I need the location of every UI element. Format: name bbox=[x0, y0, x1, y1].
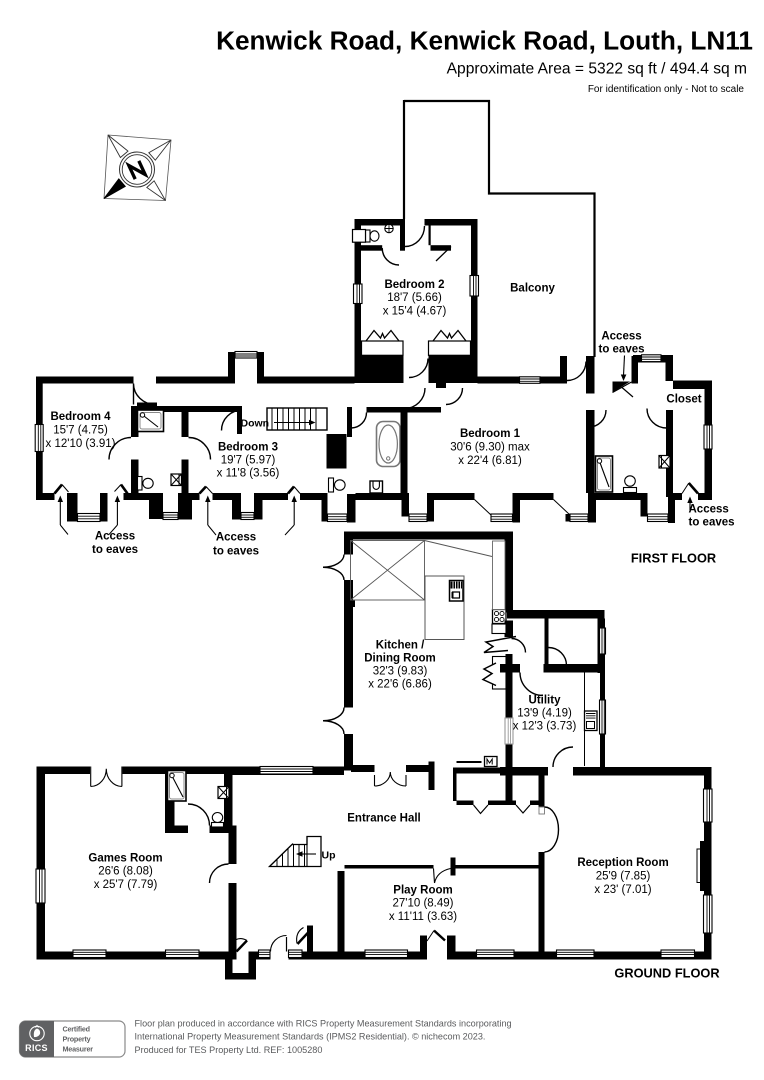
svg-text:Floor plan produced in accorda: Floor plan produced in accordance with R… bbox=[135, 1019, 512, 1029]
svg-text:x 25'7 (7.79): x 25'7 (7.79) bbox=[94, 879, 158, 891]
svg-text:to eaves: to eaves bbox=[92, 544, 138, 556]
svg-text:Measurer: Measurer bbox=[63, 1045, 94, 1054]
svg-text:Bedroom 2: Bedroom 2 bbox=[384, 279, 444, 291]
svg-text:x 22'4 (6.81): x 22'4 (6.81) bbox=[458, 455, 522, 467]
svg-text:Kenwick Road, Kenwick Road, Lo: Kenwick Road, Kenwick Road, Louth, LN11 bbox=[216, 26, 753, 56]
svg-text:to eaves: to eaves bbox=[598, 344, 644, 356]
svg-text:25'9 (7.85): 25'9 (7.85) bbox=[596, 871, 651, 883]
svg-text:15'7 (4.75): 15'7 (4.75) bbox=[53, 425, 108, 437]
svg-text:Produced for TES Property Ltd.: Produced for TES Property Ltd. REF: 1005… bbox=[135, 1045, 323, 1055]
svg-text:Utility: Utility bbox=[529, 695, 562, 707]
svg-text:Access: Access bbox=[216, 532, 256, 544]
svg-text:Approximate Area = 5322 sq ft: Approximate Area = 5322 sq ft / 494.4 sq… bbox=[447, 61, 747, 78]
svg-text:to eaves: to eaves bbox=[689, 517, 735, 529]
svg-text:32'3 (9.83): 32'3 (9.83) bbox=[373, 666, 428, 678]
svg-text:x 15'4 (4.67): x 15'4 (4.67) bbox=[383, 306, 447, 318]
svg-text:19'7 (5.97): 19'7 (5.97) bbox=[221, 455, 276, 467]
svg-text:International Property Measure: International Property Measurement Stand… bbox=[135, 1032, 486, 1042]
svg-text:Play Room: Play Room bbox=[393, 885, 452, 897]
svg-text:RICS: RICS bbox=[25, 1043, 48, 1053]
svg-text:18'7 (5.66): 18'7 (5.66) bbox=[387, 292, 442, 304]
svg-text:Reception Room: Reception Room bbox=[577, 857, 668, 869]
svg-text:Up: Up bbox=[322, 850, 336, 862]
svg-text:x 12'10 (3.91): x 12'10 (3.91) bbox=[46, 438, 116, 450]
svg-text:Property: Property bbox=[63, 1035, 91, 1044]
svg-text:Access: Access bbox=[689, 504, 729, 516]
svg-text:Balcony: Balcony bbox=[510, 283, 555, 295]
svg-text:Games Room: Games Room bbox=[88, 853, 162, 865]
svg-text:x 22'6 (6.86): x 22'6 (6.86) bbox=[368, 679, 432, 691]
svg-text:Bedroom 3: Bedroom 3 bbox=[218, 442, 278, 454]
svg-text:x 11'11 (3.63): x 11'11 (3.63) bbox=[389, 911, 457, 923]
svg-text:x 11'8 (3.56): x 11'8 (3.56) bbox=[217, 468, 280, 480]
svg-text:Bedroom 1: Bedroom 1 bbox=[460, 428, 521, 440]
svg-text:Down: Down bbox=[241, 418, 270, 430]
svg-text:Certified: Certified bbox=[63, 1025, 90, 1034]
svg-text:to eaves: to eaves bbox=[213, 546, 259, 558]
svg-text:Bedroom 4: Bedroom 4 bbox=[50, 411, 111, 423]
svg-text:For identification only - Not: For identification only - Not to scale bbox=[588, 84, 745, 95]
svg-text:Entrance Hall: Entrance Hall bbox=[347, 813, 421, 825]
svg-text:27'10 (8.49): 27'10 (8.49) bbox=[392, 898, 453, 910]
svg-text:26'6 (8.08): 26'6 (8.08) bbox=[98, 866, 153, 878]
svg-text:GROUND FLOOR: GROUND FLOOR bbox=[614, 966, 719, 981]
svg-text:x 12'3 (3.73): x 12'3 (3.73) bbox=[513, 721, 577, 733]
svg-text:FIRST FLOOR: FIRST FLOOR bbox=[631, 551, 716, 566]
svg-text:13'9 (4.19): 13'9 (4.19) bbox=[517, 708, 572, 720]
svg-text:Closet: Closet bbox=[666, 394, 701, 406]
svg-text:Access: Access bbox=[601, 331, 641, 343]
svg-text:Dining Room: Dining Room bbox=[364, 653, 436, 665]
svg-text:Kitchen /: Kitchen / bbox=[376, 640, 425, 652]
svg-text:x 23' (7.01): x 23' (7.01) bbox=[594, 884, 651, 896]
svg-text:Access: Access bbox=[95, 531, 135, 543]
svg-text:30'6 (9.30) max: 30'6 (9.30) max bbox=[450, 442, 530, 454]
